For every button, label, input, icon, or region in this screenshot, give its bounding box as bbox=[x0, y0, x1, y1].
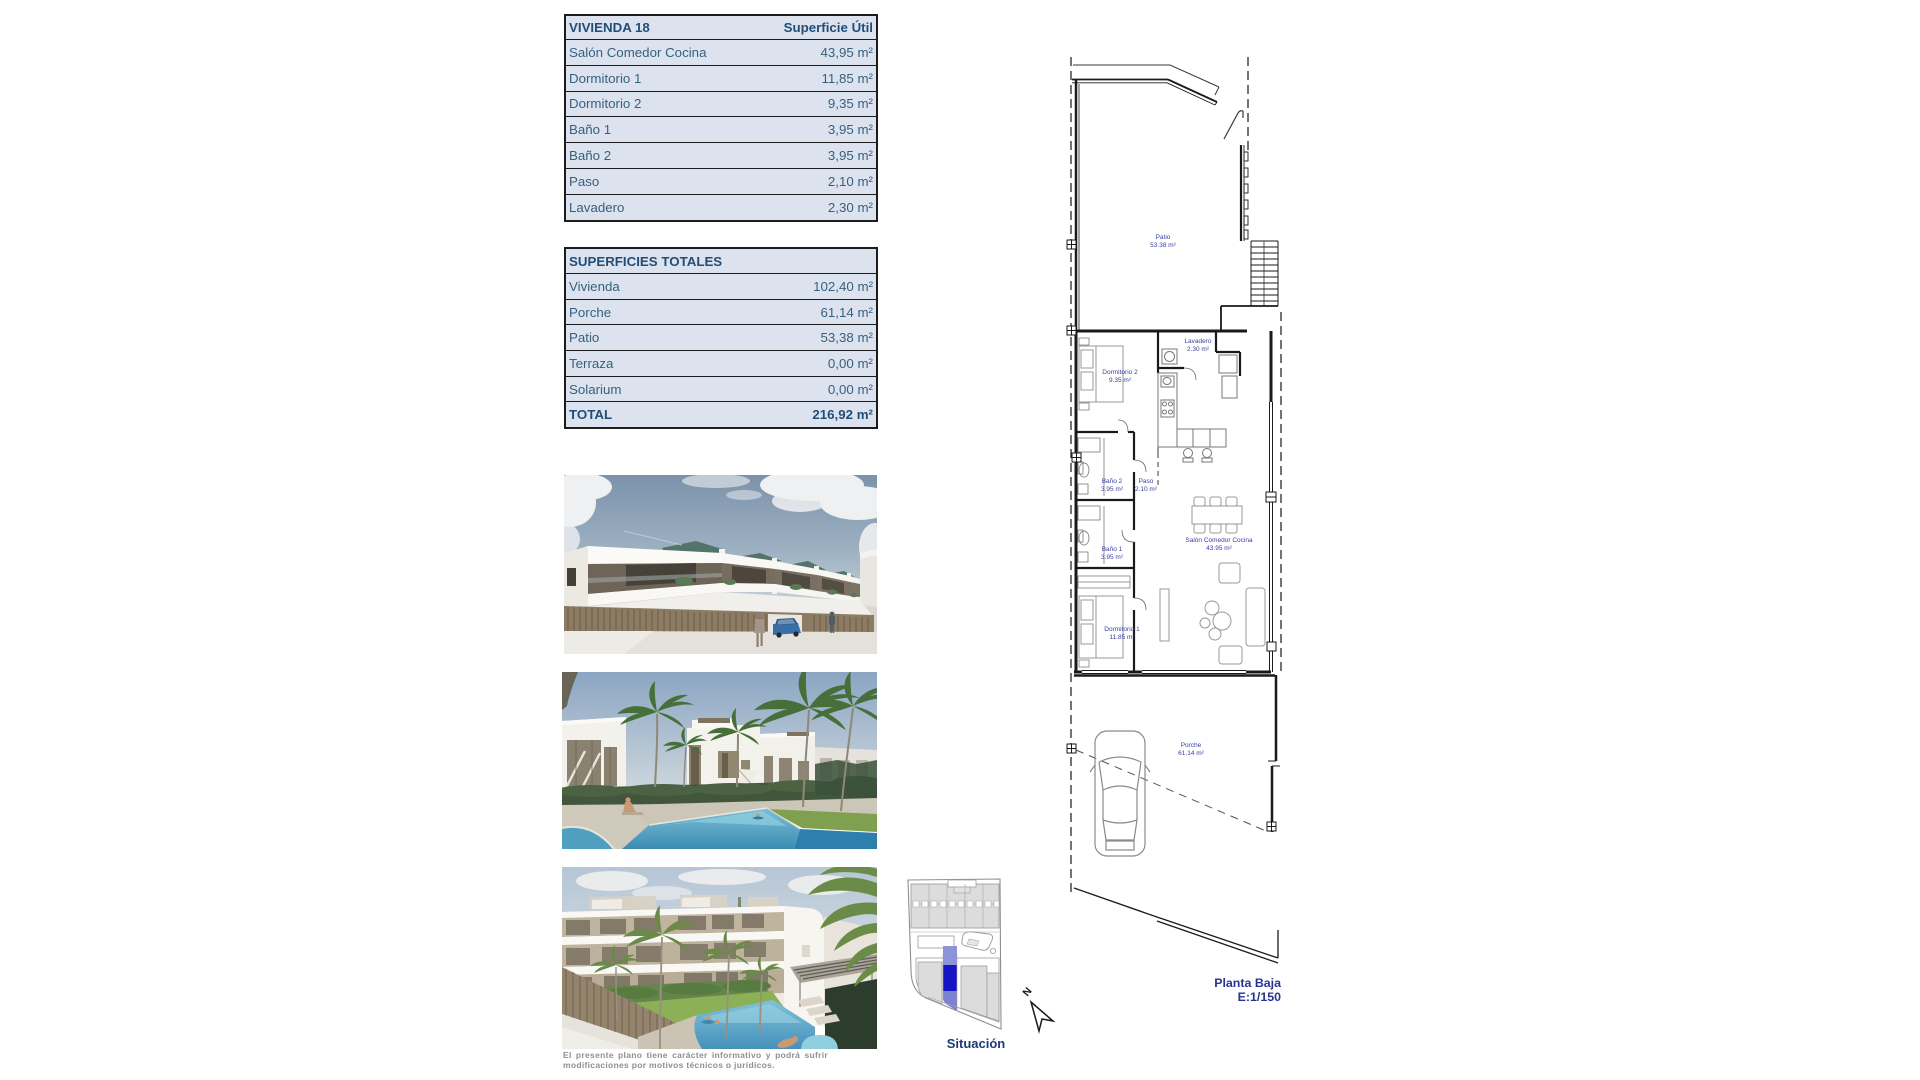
svg-text:2.10 m²: 2.10 m² bbox=[1135, 486, 1158, 493]
svg-text:Paso: Paso bbox=[1139, 478, 1154, 485]
svg-text:N: N bbox=[1021, 985, 1035, 999]
svg-text:Dormitorio 1: Dormitorio 1 bbox=[1104, 626, 1140, 633]
svg-text:Lavadero: Lavadero bbox=[1184, 338, 1211, 345]
svg-text:Baño 2: Baño 2 bbox=[1102, 478, 1123, 485]
svg-text:Patio: Patio bbox=[1156, 234, 1171, 241]
svg-text:Baño 1: Baño 1 bbox=[1102, 546, 1123, 553]
svg-text:61.14 m²: 61.14 m² bbox=[1178, 750, 1204, 757]
svg-text:3.95 m²: 3.95 m² bbox=[1101, 486, 1124, 493]
svg-text:11.85 m²: 11.85 m² bbox=[1109, 634, 1135, 641]
svg-text:Dormitorio 2: Dormitorio 2 bbox=[1102, 369, 1138, 376]
svg-text:43.95 m²: 43.95 m² bbox=[1206, 545, 1232, 552]
svg-text:9.35 m²: 9.35 m² bbox=[1109, 377, 1132, 384]
svg-text:53.38 m²: 53.38 m² bbox=[1150, 242, 1176, 249]
svg-text:Salón Comedor Cocina: Salón Comedor Cocina bbox=[1185, 537, 1253, 544]
svg-text:3.95 m²: 3.95 m² bbox=[1101, 554, 1124, 561]
svg-text:2.30 m²: 2.30 m² bbox=[1187, 346, 1210, 353]
svg-text:Porche: Porche bbox=[1181, 742, 1202, 749]
